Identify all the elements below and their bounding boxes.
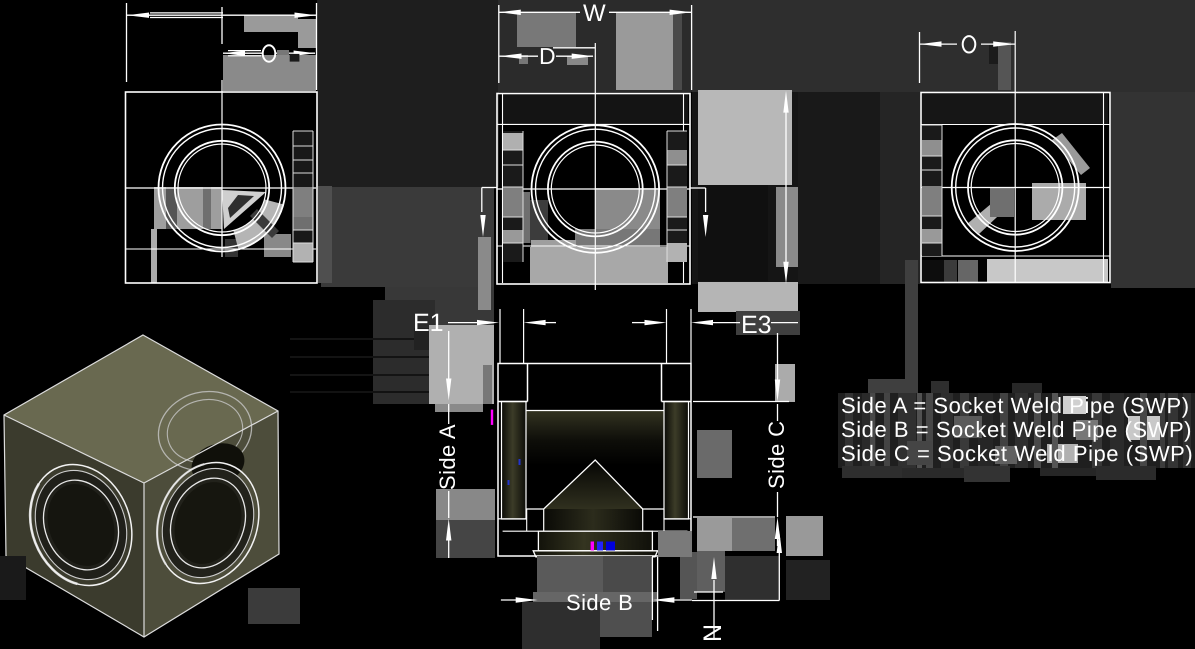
svg-text:E3: E3 (741, 311, 772, 339)
svg-text:Side A = Socket Weld Pipe (SWP: Side A = Socket Weld Pipe (SWP) (841, 393, 1190, 418)
svg-text:W: W (583, 0, 606, 27)
svg-text:E1: E1 (413, 309, 444, 337)
svg-text:Side A: Side A (435, 424, 460, 490)
svg-text:Side B = Socket Weld Pipe (SWP: Side B = Socket Weld Pipe (SWP) (841, 417, 1192, 442)
svg-text:N: N (699, 624, 727, 642)
svg-text:Side C = Socket Weld Pipe (SWP: Side C = Socket Weld Pipe (SWP) (841, 441, 1193, 466)
svg-text:Side B: Side B (566, 590, 633, 615)
svg-text:D: D (539, 43, 556, 69)
svg-text:Side C: Side C (764, 421, 789, 489)
